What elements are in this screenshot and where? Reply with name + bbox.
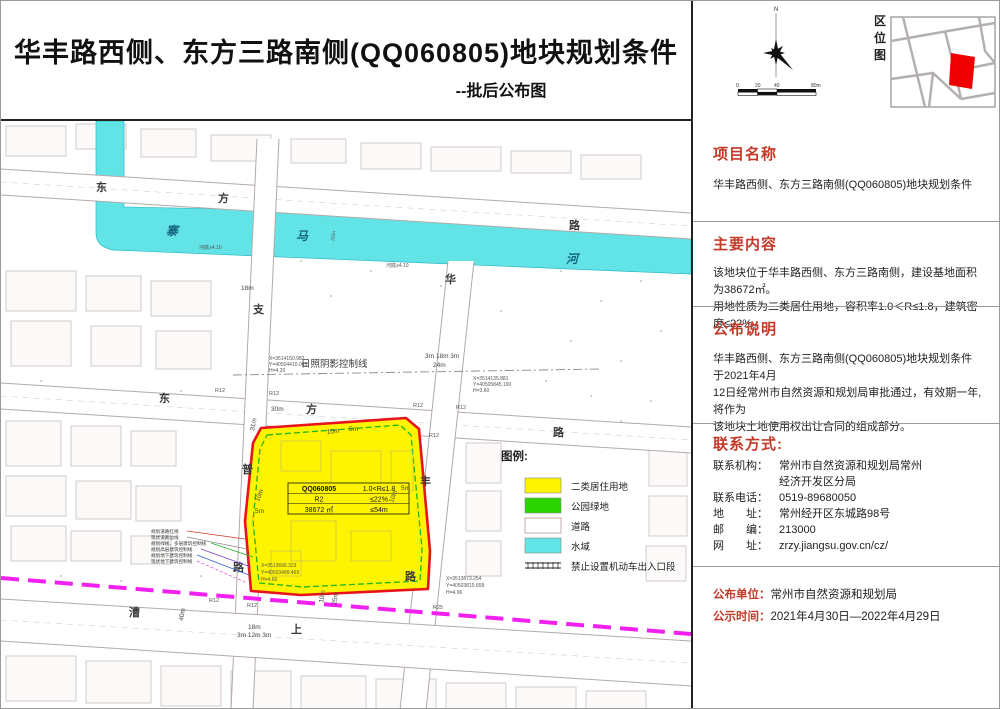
road-label-char: 路: [553, 425, 565, 439]
dim-label: 25m: [331, 592, 340, 606]
coord-h: H=4.60: [261, 577, 277, 583]
publisher-row: 公布单位： 常州市自然资源和规划局: [713, 586, 993, 602]
publicity-period-row: 公示时间： 2021年4月30日—2022年4月29日: [713, 608, 993, 624]
road-label-char: 华: [445, 272, 456, 286]
publicity-period-value: 2021年4月30日—2022年4月29日: [771, 608, 941, 624]
map-tools-area: N 0 20 40 80m: [693, 1, 1000, 121]
header: 华丰路西侧、东方三路南侧(QQ060805)地块规划条件 --批后公布图: [1, 1, 691, 121]
road-label-char: 路: [569, 218, 581, 232]
coord-h: H=3.60: [473, 388, 489, 394]
section-heading-publish-note: 公布说明: [713, 318, 777, 339]
contact-value: 213000: [779, 523, 993, 539]
info-panel: 项目名称 华丰路西侧、东方三路南侧(QQ060805)地块规划条件 主要内容 该…: [693, 121, 1000, 709]
contact-row-website: 网 址： zrzy.jiangsu.gov.cn/cz/: [713, 539, 993, 555]
radius-label: R12: [209, 598, 219, 604]
radius-label: R12: [429, 433, 439, 439]
contact-row-address: 地 址： 常州经开区东城路98号: [713, 507, 993, 523]
river-depth-note: 河底≥4.10: [386, 262, 409, 269]
contact-label: 联系机构：: [713, 459, 779, 475]
coord-x: X=3513873.254: [446, 576, 482, 582]
river-depth-note: 河底≥4.10: [199, 244, 222, 251]
north-label: N: [774, 7, 778, 13]
location-inset-map: [891, 17, 995, 107]
coordinate-callout: X=3513873.254 Y=40503810.658 H=4.96: [446, 576, 484, 596]
section-separator: [693, 423, 1000, 424]
road-label-char: 方: [306, 402, 317, 416]
project-name-text: 华丰路西侧、东方三路南侧(QQ060805)地块规划条件: [713, 177, 985, 194]
dim-label: 10m: [326, 428, 339, 436]
callout-line: 规划高层建筑控制线: [151, 546, 193, 553]
scale-bar: 0 20 40 80m: [736, 83, 821, 95]
contact-table: 联系机构： 常州市自然资源和规划局常州 经济开发区分局 联系电话： 0519-8…: [713, 459, 993, 555]
river-label-char: 寨: [166, 224, 180, 238]
coordinate-callout: X=3514135.881 Y=40505845.190 H=3.60: [473, 376, 511, 394]
scale-tick-40: 40: [774, 83, 780, 89]
road-label-char: 丰: [420, 474, 431, 488]
contact-value: 常州市自然资源和规划局常州: [779, 459, 993, 475]
radius-label: R12: [215, 388, 225, 394]
dim-label: 5m: [255, 508, 264, 515]
contact-label: 联系电话：: [713, 491, 779, 507]
callout-line: 规划地下建筑控制线: [151, 552, 193, 559]
coord-h: H=4.96: [446, 590, 462, 596]
road-label-char: 普: [242, 462, 253, 476]
sunshine-shadow-control-label: 日照阴影控制线: [301, 358, 368, 370]
contact-value: zrzy.jiangsu.gov.cn/cz/: [779, 539, 993, 555]
coord-y: Y=40503810.658: [446, 583, 484, 589]
parcel-density: ≤22%: [370, 497, 388, 504]
publish-note-line: 华丰路西侧、东方三路南侧(QQ060805)地块规划条件 于2021年4月: [713, 351, 985, 385]
legend-label: 公园绿地: [571, 501, 610, 513]
radius-label: R12: [269, 391, 279, 397]
publisher-label: 公布单位：: [713, 586, 771, 602]
legend-title: 图例:: [501, 449, 528, 463]
road-label-char: 东: [159, 391, 170, 405]
dim-label: 30m: [271, 406, 284, 413]
contact-row-phone: 联系电话： 0519-89680050: [713, 491, 993, 507]
coord-h: H=4.20: [269, 368, 285, 374]
river-label-char: 马: [296, 229, 309, 243]
legend-swatch-water: [525, 538, 561, 553]
road-label-char: 支: [252, 302, 265, 316]
publisher-value: 常州市自然资源和规划局: [771, 586, 898, 602]
dim-label: 18m: [248, 624, 261, 631]
main-content-line: 该地块位于华丰路西侧、东方三路南侧，建设基地面积为38672㎡。: [713, 265, 985, 299]
contact-row-org2: 经济开发区分局: [713, 475, 993, 491]
legend-label: 道路: [571, 521, 591, 533]
radius-label: R12: [413, 403, 423, 409]
callout-line: 规划道路红线: [151, 528, 179, 535]
road-label-char: 上: [291, 622, 302, 636]
callout-line: 现状地下建筑控制线: [151, 558, 193, 565]
road-label-char: 东: [96, 180, 107, 194]
planning-map: 日照阴影控制线 QQ060805 1.0<R≤1.8 R2: [1, 121, 691, 709]
radius-label: R12: [247, 603, 257, 609]
callout-line: 规划绿线、多层建筑控制线: [151, 540, 207, 547]
page-subtitle: --批后公布图: [381, 77, 621, 101]
section-separator: [693, 306, 1000, 307]
section-heading-contact: 联系方式:: [713, 433, 783, 454]
contact-label: 网 址：: [713, 539, 779, 555]
parcel-code: QQ060805: [302, 486, 336, 493]
section-heading-project-name: 项目名称: [713, 143, 777, 164]
dim-label: 3m 12m 3m: [237, 632, 271, 639]
contact-value: 经济开发区分局: [779, 475, 993, 491]
contact-value: 0519-89680050: [779, 491, 993, 507]
scale-tick-20: 20: [755, 83, 761, 89]
parcel-far: 1.0<R≤1.8: [363, 486, 396, 493]
planning-notice-sheet: 华丰路西侧、东方三路南侧(QQ060805)地块规划条件 --批后公布图 N 0: [0, 0, 1000, 709]
section-separator: [693, 221, 1000, 222]
legend-label: 水域: [571, 541, 591, 553]
legend-label: 二类居住用地: [571, 481, 629, 493]
scale-tick-0: 0: [736, 83, 739, 89]
radius-label: R12: [456, 405, 466, 411]
dim-label: 18m: [241, 285, 254, 292]
location-parcel-highlight: [949, 53, 975, 89]
dim-label: 5m: [349, 426, 358, 433]
section-heading-main-content: 主要内容: [713, 233, 777, 254]
parcel-use-code: R2: [315, 497, 324, 504]
road-label-char: 路: [233, 560, 245, 574]
sunshine-shadow-control-line: [233, 369, 601, 375]
callout-line: 现状道路边线: [151, 534, 179, 541]
parcel-height-limit: ≤54m: [370, 507, 388, 514]
contact-label: [713, 475, 779, 491]
publish-note-line: 12日经常州市自然资源和规划局审批通过，有效期一年,将作为: [713, 385, 985, 419]
dim-label: 5m: [401, 485, 410, 492]
compass-and-scale: N 0 20 40 80m: [693, 1, 1000, 121]
scale-tick-80: 80m: [811, 83, 821, 89]
road-label-char: 方: [218, 191, 229, 205]
contact-row-zip: 邮 编： 213000: [713, 523, 993, 539]
coord-y: Y=40503489.469: [261, 570, 299, 576]
section-separator: [693, 566, 1000, 567]
north-arrow-icon: N: [763, 7, 793, 77]
contact-row-org: 联系机构： 常州市自然资源和规划局常州: [713, 459, 993, 475]
location-map-title: 区位图: [873, 13, 887, 64]
legend-swatch-road: [525, 518, 561, 533]
dim-label: 24m: [433, 362, 446, 369]
legend-label: 禁止设置机动车出入口段: [571, 561, 676, 573]
parcel-area: 38672 ㎡: [305, 506, 333, 514]
coord-x: X=3513696.323: [261, 563, 297, 569]
road-label-char: 漕: [129, 605, 140, 619]
legend-swatch-park-green: [525, 498, 561, 513]
dim-label: 3m 18m 3m: [425, 353, 459, 360]
contact-label: 地 址：: [713, 507, 779, 523]
page-title: 华丰路西侧、东方三路南侧(QQ060805)地块规划条件: [1, 31, 691, 70]
legend-swatch-residential: [525, 478, 561, 493]
road-label-char: 路: [405, 569, 417, 583]
contact-value: 常州经开区东城路98号: [779, 507, 993, 523]
dim-label: 10m: [318, 590, 327, 604]
contact-label: 邮 编：: [713, 523, 779, 539]
radius-label: R25: [433, 605, 443, 611]
publicity-period-label: 公示时间：: [713, 608, 771, 624]
coordinate-callout: X=3514150.982 Y=40504410.065 H=4.20: [269, 356, 307, 374]
legend-swatch-no-vehicle-access: [525, 562, 561, 569]
